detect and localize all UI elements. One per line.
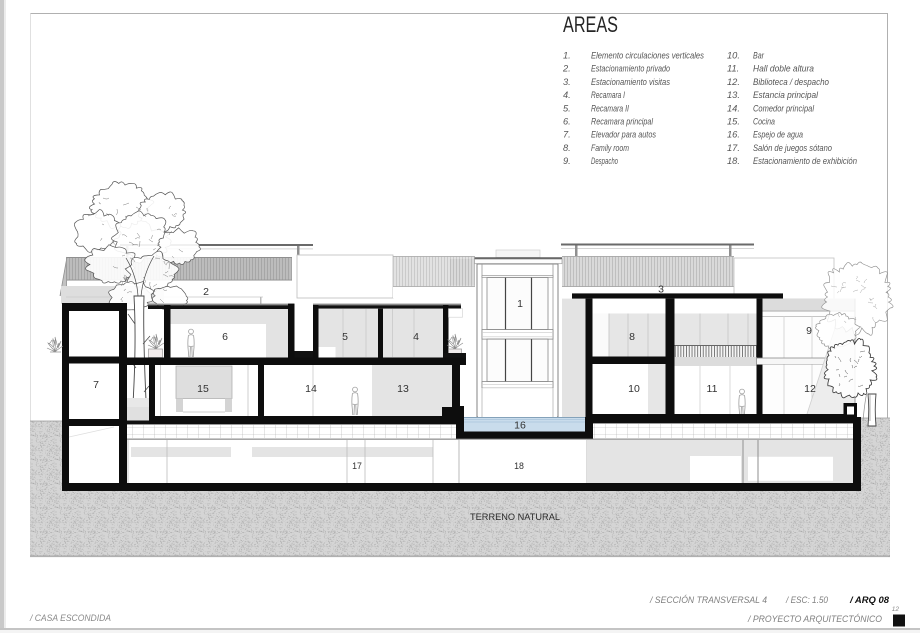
svg-text:Family room: Family room (591, 143, 629, 153)
svg-text:2: 2 (203, 286, 209, 298)
svg-text:Estacionamiento de exhibición: Estacionamiento de exhibición (753, 156, 857, 166)
svg-text:17: 17 (352, 461, 362, 471)
svg-text:1.: 1. (563, 51, 571, 61)
svg-text:Elemento circulaciones vertica: Elemento circulaciones verticales (591, 51, 704, 61)
svg-text:Comedor principal: Comedor principal (753, 103, 815, 113)
svg-text:13.: 13. (727, 90, 740, 100)
svg-text:3.: 3. (563, 77, 571, 87)
svg-text:4.: 4. (563, 90, 571, 100)
svg-text:Cocina: Cocina (753, 117, 775, 127)
svg-text:11: 11 (707, 383, 718, 395)
svg-text:/ PROYECTO ARQUITECTÓNICO: / PROYECTO ARQUITECTÓNICO (747, 614, 882, 625)
svg-text:18.: 18. (727, 156, 740, 166)
svg-text:12: 12 (892, 606, 900, 613)
svg-text:Estancia principal: Estancia principal (753, 90, 819, 100)
svg-text:TERRENO NATURAL: TERRENO NATURAL (470, 512, 560, 523)
svg-text:17.: 17. (727, 143, 740, 153)
svg-text:Biblioteca / despacho: Biblioteca / despacho (753, 77, 829, 87)
svg-text:7.: 7. (563, 130, 571, 140)
svg-text:6.: 6. (563, 117, 571, 127)
svg-text:4: 4 (413, 331, 419, 343)
svg-text:8.: 8. (563, 143, 571, 153)
svg-text:7: 7 (93, 379, 99, 391)
svg-text:10: 10 (628, 383, 640, 395)
svg-text:1: 1 (517, 298, 523, 310)
svg-text:5: 5 (342, 331, 348, 343)
svg-text:Elevador para autos: Elevador para autos (591, 130, 656, 140)
svg-text:Salón de juegos sótano: Salón de juegos sótano (753, 143, 832, 153)
svg-text:16.: 16. (727, 130, 740, 140)
svg-text:2.: 2. (562, 64, 571, 74)
svg-text:Recamara II: Recamara II (591, 103, 629, 113)
svg-text:/ CASA ESCONDIDA: / CASA ESCONDIDA (29, 613, 111, 623)
svg-text:6: 6 (222, 331, 228, 343)
svg-text:Hall doble altura: Hall doble altura (753, 64, 814, 74)
svg-text:Estacionamiento visitas: Estacionamiento visitas (591, 77, 670, 87)
svg-text:8: 8 (629, 331, 635, 343)
svg-text:12.: 12. (727, 77, 740, 87)
svg-text:AREAS: AREAS (563, 12, 618, 37)
svg-text:9.: 9. (563, 156, 571, 166)
svg-text:Recamara principal: Recamara principal (591, 117, 654, 127)
svg-text:Bar: Bar (753, 51, 765, 61)
svg-text:/ ARQ 08: / ARQ 08 (849, 595, 890, 606)
svg-text:/ SECCIÓN TRANSVERSAL 4: / SECCIÓN TRANSVERSAL 4 (649, 595, 767, 606)
svg-text:5.: 5. (563, 103, 571, 113)
svg-text:/ ESC: 1.50: / ESC: 1.50 (785, 595, 828, 606)
svg-text:11.: 11. (727, 64, 739, 74)
svg-text:16: 16 (514, 420, 526, 432)
svg-text:15: 15 (197, 383, 209, 395)
svg-text:13: 13 (397, 383, 409, 395)
svg-text:14: 14 (305, 383, 317, 395)
svg-text:Espejo de agua: Espejo de agua (753, 130, 803, 140)
svg-text:10.: 10. (727, 51, 740, 61)
svg-text:15.: 15. (727, 117, 740, 127)
svg-text:12: 12 (804, 383, 816, 395)
svg-text:Estacionamiento privado: Estacionamiento privado (591, 64, 670, 74)
svg-text:9: 9 (806, 325, 812, 337)
svg-text:14.: 14. (727, 103, 740, 113)
svg-text:Recamara I: Recamara I (591, 90, 625, 100)
svg-text:3: 3 (658, 284, 664, 296)
svg-text:Despacho: Despacho (591, 156, 618, 166)
svg-text:18: 18 (514, 461, 524, 471)
